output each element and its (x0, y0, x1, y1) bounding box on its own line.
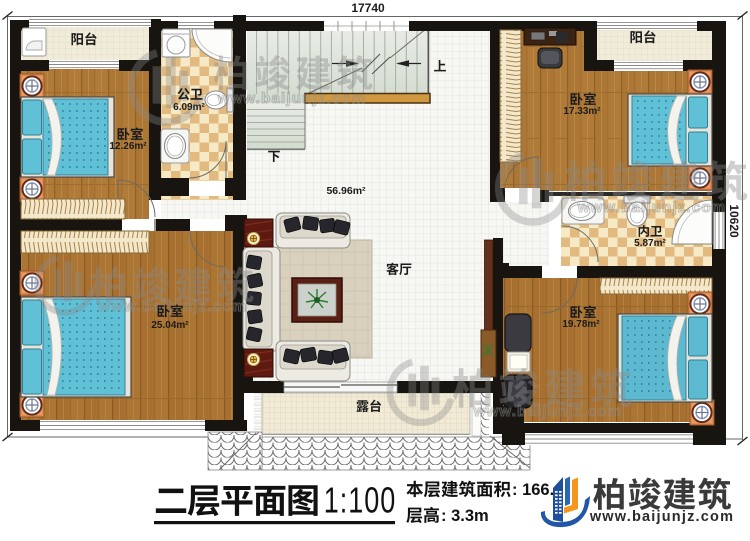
svg-text:17740: 17740 (351, 1, 385, 15)
svg-text:www.baijunjz.com: www.baijunjz.com (589, 509, 734, 525)
svg-text:17.33m²: 17.33m² (563, 106, 601, 117)
svg-text:: 3.3m: : 3.3m (441, 507, 489, 525)
svg-text:1:100: 1:100 (324, 480, 397, 521)
svg-text:www.baijunjz.com: www.baijunjz.com (577, 199, 727, 216)
svg-text:5.87m²: 5.87m² (634, 238, 666, 249)
svg-text:6.09m²: 6.09m² (173, 102, 205, 113)
svg-text:12.26m²: 12.26m² (109, 141, 147, 152)
svg-text:10620: 10620 (727, 204, 741, 238)
svg-text:www.baijunjz.com: www.baijunjz.com (217, 90, 367, 107)
svg-text:56.96m²: 56.96m² (326, 185, 366, 197)
svg-text:19.78m²: 19.78m² (562, 319, 600, 330)
svg-text:www.baijunjz.com: www.baijunjz.com (473, 403, 623, 420)
svg-text:25.04m²: 25.04m² (151, 320, 189, 331)
